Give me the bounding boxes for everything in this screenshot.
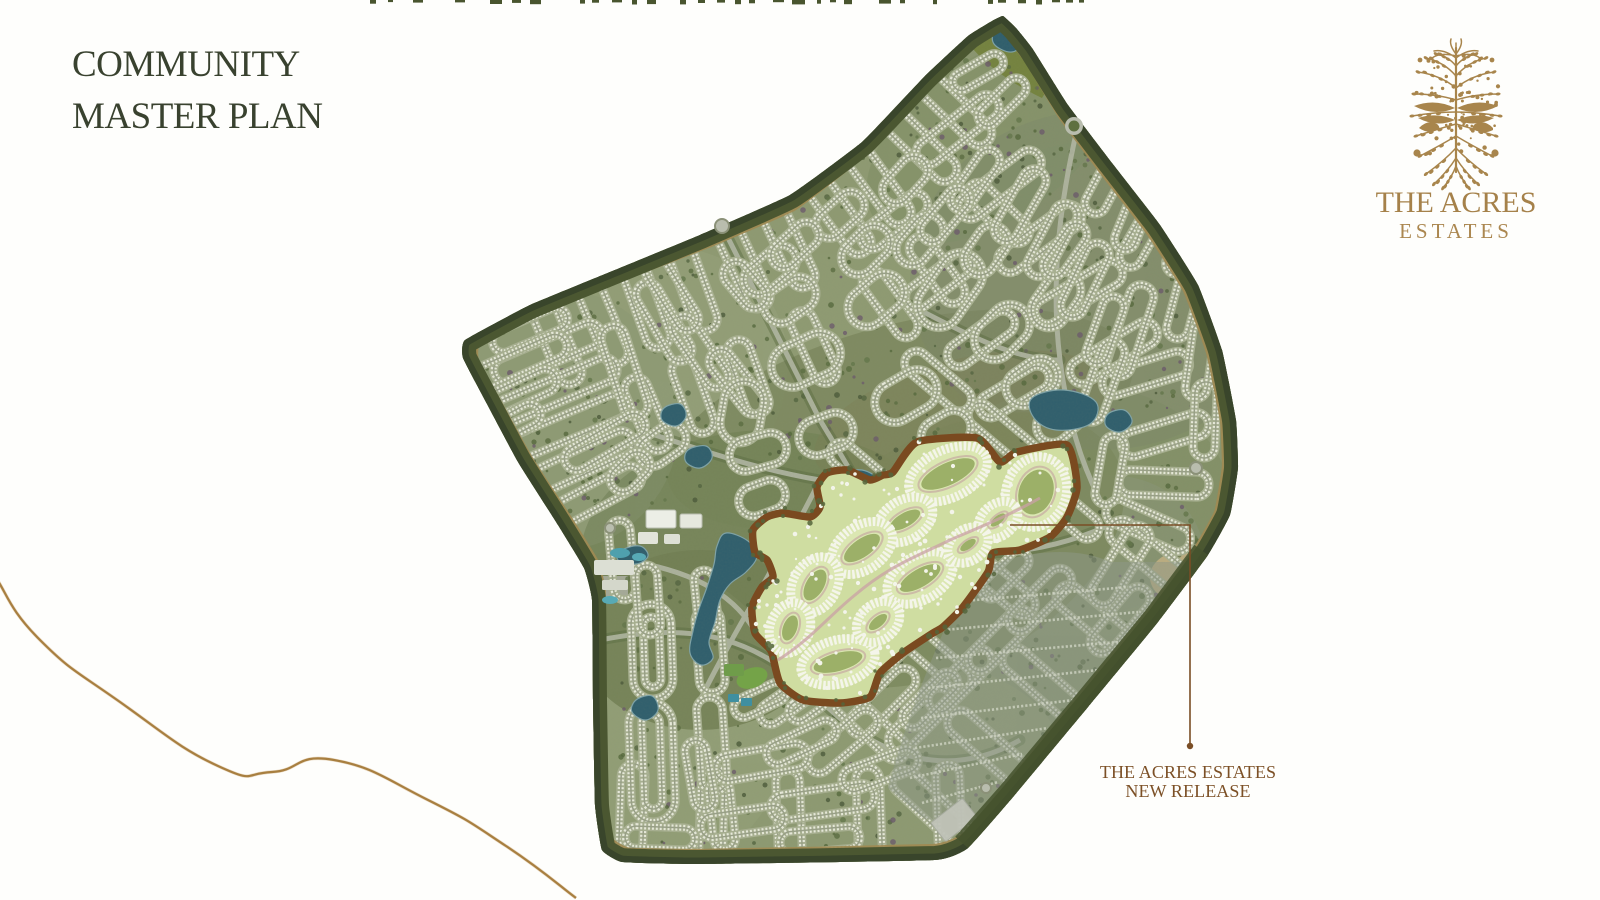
svg-text:MASTER PLAN: MASTER PLAN xyxy=(72,96,322,137)
svg-text:NEW RELEASE: NEW RELEASE xyxy=(1125,781,1250,801)
svg-text:COMMUNITY: COMMUNITY xyxy=(72,44,300,85)
svg-text:ESTATES: ESTATES xyxy=(1399,219,1513,243)
svg-text:THE ACRES ESTATES: THE ACRES ESTATES xyxy=(1100,762,1276,782)
svg-text:THE ACRES: THE ACRES xyxy=(1376,186,1537,219)
